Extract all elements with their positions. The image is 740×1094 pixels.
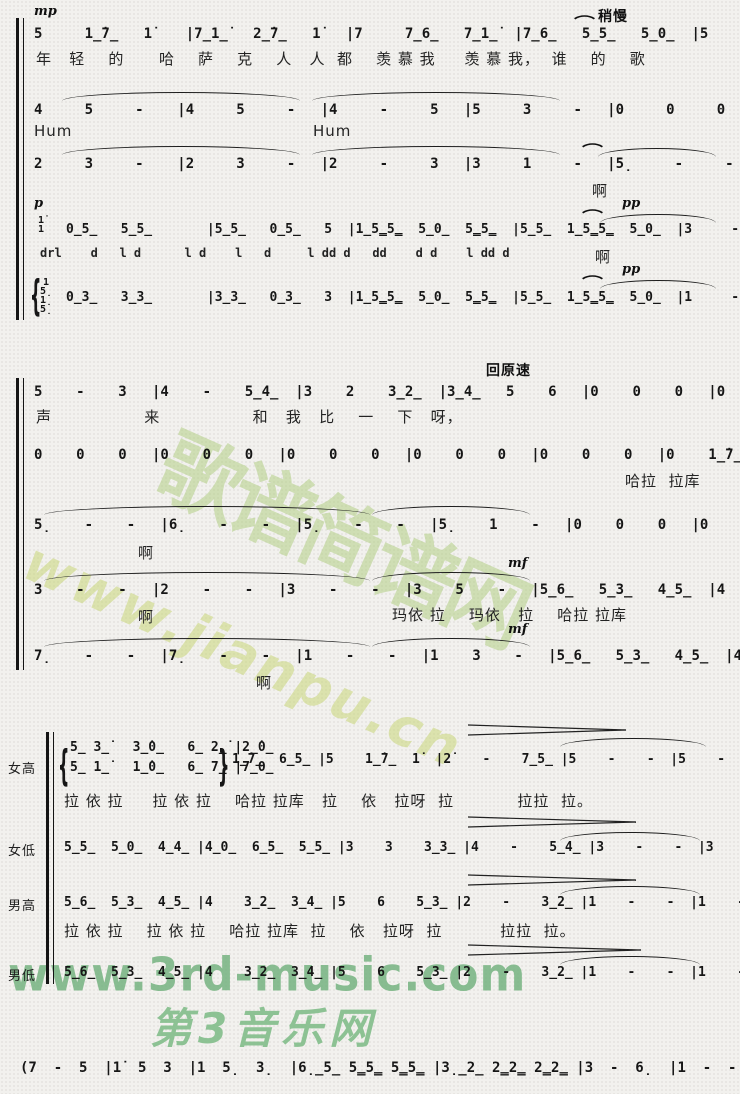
voice2-lyric-hum-2: Hum (313, 122, 351, 140)
voice3-lyric-ah-s2: 啊 (138, 542, 153, 563)
dynamic-mp: mp (34, 4, 57, 19)
voice3-notes-s2: 5̣ - - |6̣ - - |5̣ - - |5̣ 1 - |0 0 0 |0… (34, 515, 740, 535)
voice1-notes-s2: 5 - 3 |4 - 5̲4̲ |3 2 3̲2̲ |3̲4̲ 5 6 |0 0… (34, 382, 740, 402)
tenor-notes: 5̲6̲ 5̲3̲ 4̲5̲ |4 3̲2̲ 3̲4̲ |5 6 5̲3̲ |2… (64, 893, 740, 913)
soprano-notes-cont: 1̲̇7̲ 6̲5̲ |5 1̲̇7̲ 1̇ |2̇ - 7̲5̲ |5 - -… (232, 750, 740, 770)
tenor-lyrics: 拉 依 拉 拉 依 拉 哈拉 拉库 拉 依 拉呀 拉 拉拉 拉。 (64, 922, 576, 940)
voice2-notes-s2: 0 0 0 |0 0 0 |0 0 0 |0 0 0 |0 0 0 |0 1̲̇… (34, 445, 740, 465)
chord-note: 5̣ (40, 305, 52, 314)
bass-notes: 5̲6̲ 5̲3̲ 4̲5̲ |4 3̲2̲ 3̲4̲ |5 6 5̲3̲ |2… (64, 963, 740, 983)
decrescendo-hairpin (468, 816, 638, 828)
voice-label-tenor: 男高 (8, 895, 36, 914)
alto-notes: 5̲5̲ 5̲0̲ 4̲4̲ |4̲0̲ 6̲5̲ 5̲5̲ |3 3 3̲3̲… (64, 838, 740, 858)
voice-label-bass: 男低 (8, 965, 36, 984)
brace-icon: { (58, 741, 69, 790)
voice5-chord: 1 5̣ 1̣ 5̣ (40, 278, 52, 314)
voice1-lyrics: 年 轻 的 哈 萨 克 人 人 都 羡 慕 我 羡 慕 我， 谁 的 歌 (36, 50, 646, 68)
decrescendo-hairpin (468, 874, 638, 886)
voice4-notes: 0̲5̲ 5̲5̲ |5̲5̲ 0̲5̲ 5 |1̲5̳5̳ 5̲0̲ 5̳5̳… (66, 220, 740, 240)
voice4-notes-s2: 3 - - |2 - - |3 - - |3 5 - |5̲6̲ 5̲3̲ 4̲… (34, 580, 740, 600)
sheet-music-page: { "marks": { "mp": "mp", "p": "p", "pp":… (0, 0, 740, 1094)
voice1-lyrics-s2: 声 来 和 我 比 一 下 呀， (36, 408, 463, 426)
system3-bracket (46, 732, 54, 984)
voice1-notes: 5 1̲̇7̲ 1̇ |7̲1̲̇ 2̲̇7̲ 1̇ |7 7̲6̲ 7̲1̲̇… (34, 24, 740, 44)
dynamic-mf: mf (508, 556, 527, 571)
voice-label-soprano: 女高 (8, 758, 36, 777)
voice4-chord: 1̇ 1 (38, 216, 44, 234)
dynamic-mf: mf (508, 622, 527, 637)
brace-icon: } (218, 741, 229, 790)
dynamic-p: p (34, 196, 43, 211)
coda-notes: (7 - 5 |1̇ 5 3 |1 5̣ 3̣ |6̣̲5̲ 5̳5̳ 5̳5̳… (20, 1058, 740, 1078)
voice4-lyric-ah: 啊 (595, 246, 610, 267)
voice4-lyric-ah-s2: 啊 (138, 606, 153, 627)
voice5-notes-s2: 7̣ - - |7̣ - - |1 - - |1 3 - |5̲6̲ 5̲3̲ … (34, 646, 740, 666)
watermark-3rd-music-logo: 第3音乐网 (150, 995, 377, 1056)
dynamic-pp: pp (622, 196, 640, 211)
voice4-syllables: drl d l d l d l d l dd d dd d d l dd d (40, 246, 510, 260)
decrescendo-hairpin (468, 944, 643, 956)
slur-arc (560, 738, 706, 749)
dynamic-pp: pp (622, 262, 640, 277)
decrescendo-hairpin (468, 724, 628, 736)
voice3-lyric-ah: 啊 (592, 180, 607, 201)
system2-bracket (16, 378, 24, 670)
chord-note: 1 (38, 225, 44, 234)
voice5-lyric-ah-s2: 啊 (256, 672, 271, 693)
voice3-notes: 2 3 - |2 3 - |2 - 3 |3 1 - |5̣ - - | (34, 154, 740, 174)
tempo-slower: 稍慢 (598, 6, 628, 26)
voice-label-alto: 女低 (8, 840, 36, 859)
voice2-lyrics-s2: 哈拉 拉库 (625, 472, 701, 490)
voice2-lyric-hum-1: Hum (34, 122, 72, 140)
system1-bracket (16, 18, 24, 320)
tempo-back-to-original: 回原速 (486, 360, 531, 380)
voice2-notes: 4 5 - |4 5 - |4 - 5 |5 3 - |0 0 0 | (34, 100, 740, 120)
voice5-notes: 0̲3̲ 3̲3̲ |3̲3̲ 0̲3̲ 3 |1̲5̳5̳ 5̲0̲ 5̳5̳… (66, 288, 740, 308)
soprano-lyrics: 拉 依 拉 拉 依 拉 哈拉 拉库 拉 依 拉呀 拉 拉拉 拉。 (64, 792, 593, 810)
